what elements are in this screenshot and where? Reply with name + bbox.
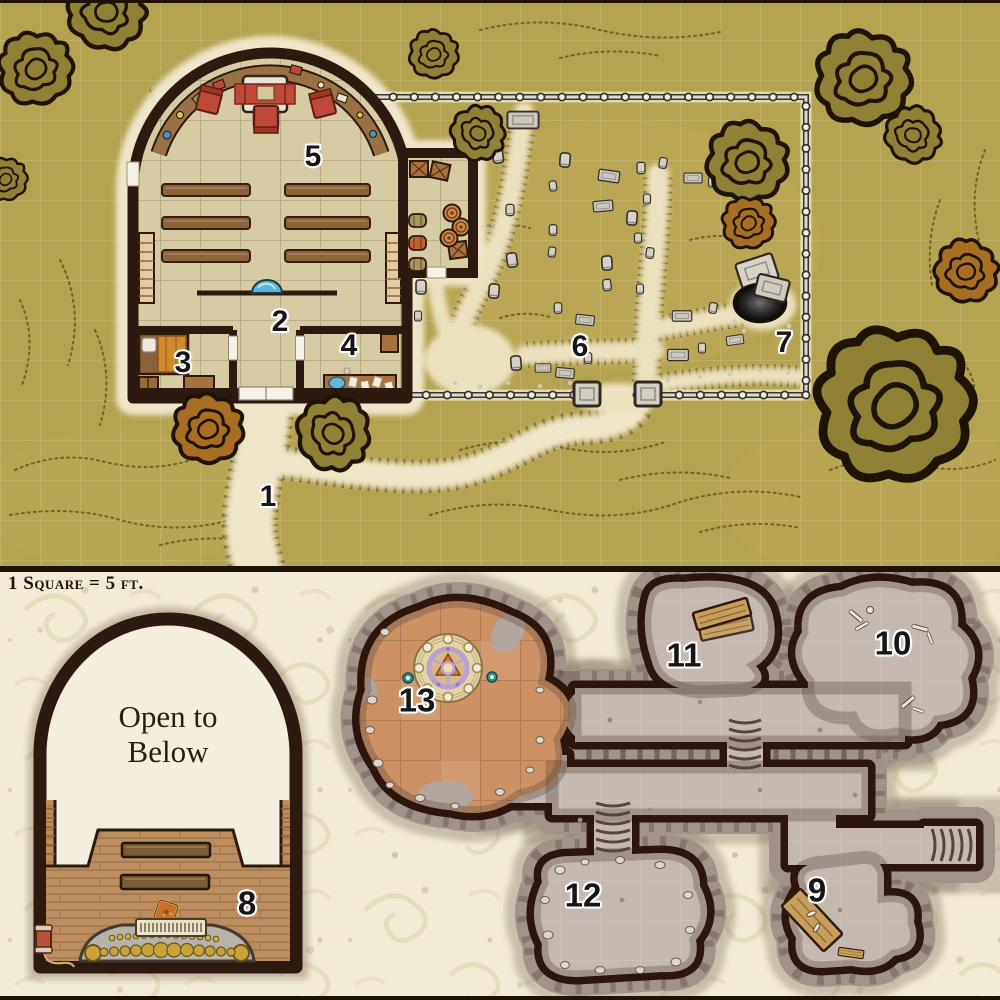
room-label-2: 2	[272, 307, 289, 337]
stairs-left	[139, 233, 154, 303]
open-to-below-label: Open to Below	[66, 700, 270, 769]
side-barrels	[409, 214, 426, 271]
upper-map	[0, 0, 1000, 570]
section-divider	[0, 566, 1000, 572]
shelf-item-yellow2	[357, 112, 363, 118]
balcony-structure	[35, 619, 296, 967]
shelf-item-white	[318, 82, 324, 88]
room-label-8: 8	[238, 887, 256, 920]
organ-keyboard	[136, 919, 206, 936]
celebrant-chair-left	[196, 85, 223, 115]
door-room4	[296, 336, 305, 360]
room-label-1: 1	[260, 482, 277, 512]
open-to-below-line2: Below	[66, 735, 270, 770]
room-label-7: 7	[776, 328, 793, 358]
room-label-13: 13	[399, 684, 436, 717]
main-entrance-door	[239, 387, 293, 400]
shelf-item-blue	[163, 131, 171, 139]
cabinet	[381, 334, 398, 352]
shelf-item-blue2	[370, 131, 377, 138]
room-label-6: 6	[572, 332, 589, 362]
room-label-3: 3	[175, 348, 192, 378]
map-scale-label: 1 Square = 5 ft.	[8, 573, 144, 595]
shelf-item-yellow	[177, 112, 184, 119]
open-to-below-line1: Open to	[66, 700, 270, 735]
room-label-11: 11	[667, 639, 702, 672]
annex-door-south	[427, 267, 446, 278]
room-label-12: 12	[565, 879, 602, 912]
apse-window	[127, 162, 139, 186]
celebrant-chair-right	[309, 89, 336, 119]
lower-map	[0, 570, 1000, 1000]
crate	[430, 161, 451, 180]
storage-annex	[400, 153, 473, 278]
room-label-5: 5	[305, 142, 322, 172]
bottom-border	[0, 996, 1000, 1000]
candle	[487, 672, 497, 682]
crate	[410, 161, 428, 177]
celebrant-chair-center	[254, 106, 278, 133]
room-label-4: 4	[341, 331, 358, 361]
top-border	[0, 0, 1000, 3]
barrel	[441, 230, 458, 247]
door-room3	[229, 336, 238, 360]
room-label-9: 9	[808, 874, 826, 907]
room-label-10: 10	[875, 627, 912, 660]
battle-map-page: 1 Square = 5 ft. Open to Below 1 2 3 4 5…	[0, 0, 1000, 1000]
